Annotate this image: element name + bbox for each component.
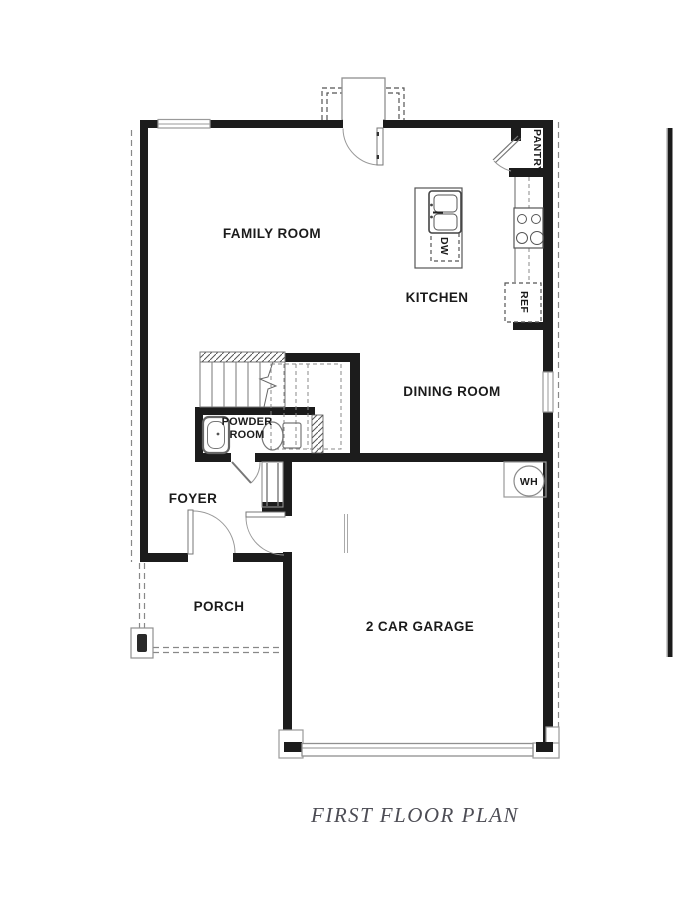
- porch-column: [131, 628, 153, 658]
- pantry-door: [493, 136, 521, 171]
- refrigerator-label: REF: [518, 291, 530, 313]
- powder-room-label-line2: ROOM: [229, 429, 264, 441]
- rear-stoop: [322, 78, 404, 120]
- floor-plan-drawing: FAMILY ROOM KITCHEN DINING ROOM POWDER R…: [0, 0, 675, 900]
- kitchen-island: [415, 188, 462, 268]
- dining-window: [543, 372, 553, 412]
- garage-door: [279, 727, 559, 758]
- rear-door: [343, 128, 383, 165]
- adjacent-page-edge: [667, 128, 673, 657]
- dishwasher-label: DW: [438, 237, 450, 255]
- pantry-label: PANTRY: [531, 129, 543, 173]
- powder-room-label-line1: POWDER: [222, 416, 273, 428]
- porch-label: PORCH: [194, 599, 245, 614]
- foyer-closet: [262, 462, 283, 507]
- garage-step-line: [345, 514, 348, 553]
- doors: [188, 128, 521, 555]
- garage-entry-door: [246, 512, 285, 555]
- front-door: [188, 510, 235, 554]
- foyer-label: FOYER: [169, 491, 218, 506]
- family-room-label: FAMILY ROOM: [223, 226, 321, 241]
- kitchen-label: KITCHEN: [406, 290, 469, 305]
- stove: [514, 208, 544, 248]
- floor-plan-page: FAMILY ROOM KITCHEN DINING ROOM POWDER R…: [0, 0, 675, 900]
- dining-room-label: DINING ROOM: [403, 384, 500, 399]
- garage-label: 2 CAR GARAGE: [366, 619, 474, 634]
- stair-break-line: [260, 362, 276, 407]
- water-heater-label: WH: [520, 476, 538, 488]
- rear-window: [158, 120, 210, 129]
- powder-room-door: [232, 462, 260, 483]
- plan-title: FIRST FLOOR PLAN: [310, 803, 519, 827]
